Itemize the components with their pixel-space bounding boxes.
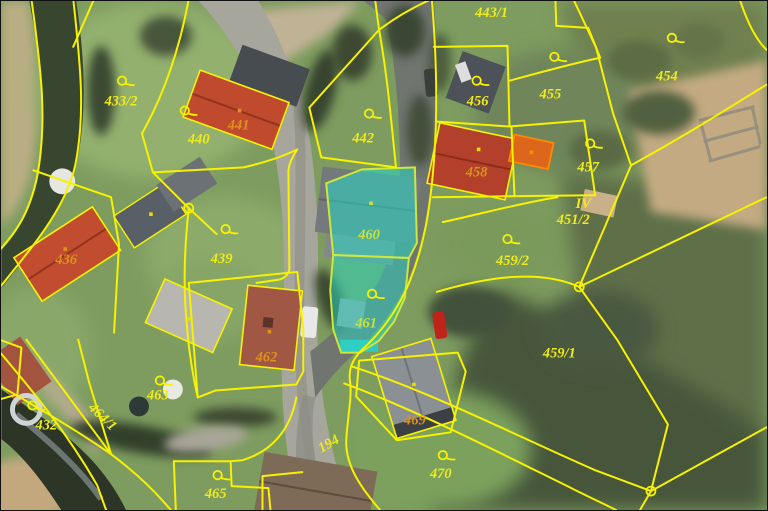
parcel-label-458[interactable]: 458: [465, 164, 488, 180]
parcel-label-462[interactable]: 462: [255, 350, 278, 366]
building-dot: [63, 247, 67, 251]
parcel-number-text: 439: [210, 251, 233, 267]
parcel-number-text: 463: [146, 387, 169, 403]
building-dot: [238, 109, 242, 113]
parcel-number-text: 470: [429, 466, 452, 482]
parcel-label-441[interactable]: 441: [227, 117, 250, 133]
building-dot: [149, 212, 153, 216]
building-dot: [530, 151, 534, 155]
building-dot: [412, 383, 416, 387]
parcel-number-text: 436: [54, 252, 77, 268]
aerial-map[interactable]: 433/2440441442443/1456455454457458IV451/…: [1, 1, 767, 510]
cadastral-map-viewport[interactable]: 433/2440441442443/1456455454457458IV451/…: [0, 0, 768, 511]
parcel-number-text: 462: [255, 350, 278, 366]
parcel-label-459/1[interactable]: 459/1: [542, 346, 576, 362]
boundary-vertex-dot: [650, 490, 652, 492]
parcel-number-text: 451/2: [556, 212, 590, 228]
parcel-label-460[interactable]: 460: [357, 227, 380, 243]
boundary-vertex-dot: [188, 207, 190, 209]
parcel-number-text: 432: [34, 417, 57, 433]
parcel-number-text: 440: [187, 131, 210, 147]
parcel-number-text: 456: [466, 94, 489, 110]
parcel-number-text: 459/1: [542, 346, 576, 362]
parcel-460-highlight[interactable]: [326, 167, 417, 258]
parcel-number-text: 458: [465, 164, 488, 180]
parcel-label-469[interactable]: 469: [403, 412, 426, 428]
parcel-number-text: 454: [655, 69, 678, 85]
building-dot: [268, 330, 272, 334]
building-dot: [477, 148, 481, 152]
parcel-label-436[interactable]: 436: [54, 252, 77, 268]
parcel-label-443/1[interactable]: 443/1: [474, 5, 508, 21]
parcel-number-text: 433/2: [104, 94, 138, 110]
parcel-number-text: 469: [403, 412, 426, 428]
parcel-number-text: 455: [539, 87, 562, 103]
building-dot: [369, 201, 373, 205]
parcel-label-451/2[interactable]: 451/2: [556, 212, 590, 228]
boundary-vertex-dot: [578, 286, 580, 288]
parcel-label-IV[interactable]: IV: [575, 196, 593, 212]
parcel-number-text: 465: [204, 486, 227, 502]
parcel-number-text: 459/2: [495, 253, 529, 269]
parcel-number-text: 457: [576, 159, 599, 175]
parcel-number-text: 442: [351, 130, 374, 146]
building-dot: [188, 317, 192, 321]
pool-dark: [129, 396, 149, 416]
parcel-number-text: IV: [575, 196, 593, 212]
parcel-number-text: 441: [227, 117, 250, 133]
parcel-number-text: 461: [354, 316, 377, 332]
parcel-number-text: 443/1: [474, 5, 508, 21]
parcel-number-text: 460: [357, 227, 380, 243]
